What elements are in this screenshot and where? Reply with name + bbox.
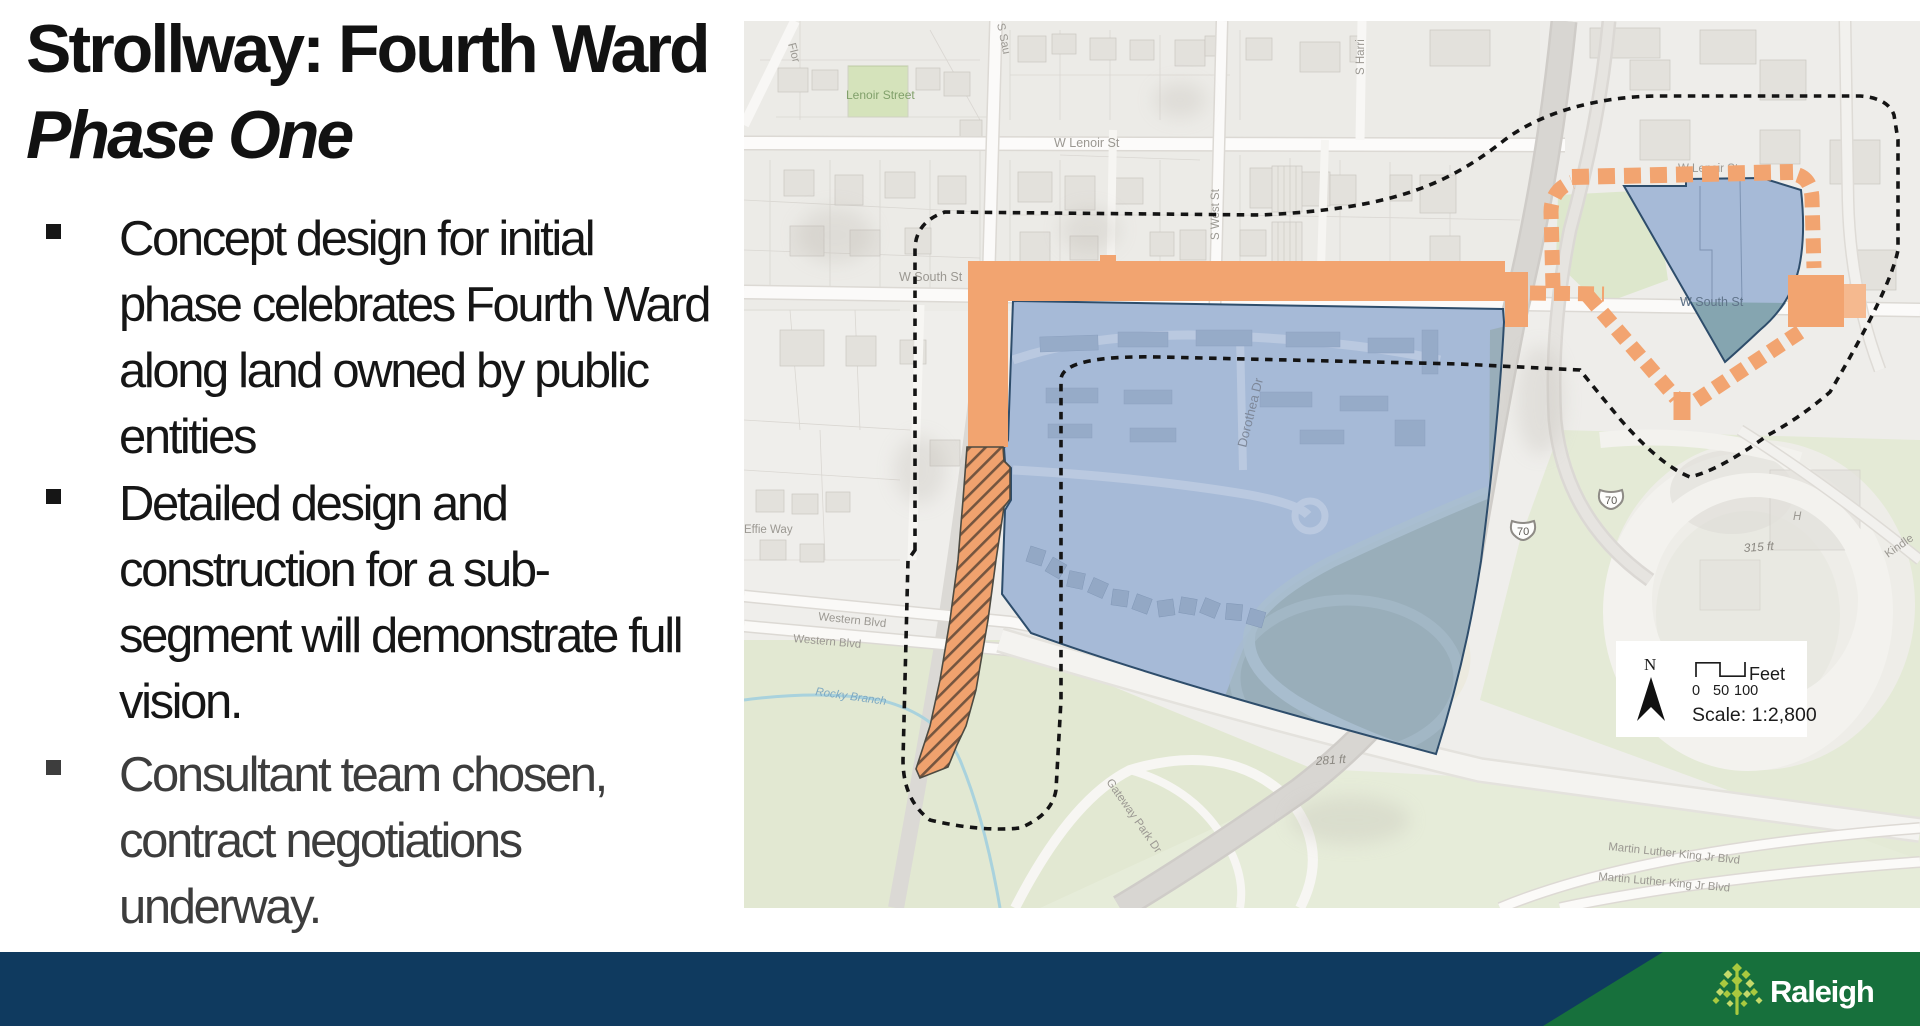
svg-text:Effie Way: Effie Way (744, 524, 793, 536)
svg-text:315 ft: 315 ft (1743, 539, 1775, 555)
svg-text:Lenoir Street: Lenoir Street (846, 88, 915, 102)
svg-text:70: 70 (1517, 526, 1529, 538)
svg-text:Feet: Feet (1749, 664, 1785, 684)
svg-text:N: N (1644, 655, 1656, 674)
svg-text:H: H (1793, 511, 1802, 523)
svg-text:W South St: W South St (899, 270, 963, 284)
svg-text:Scale: 1:2,800: Scale: 1:2,800 (1692, 704, 1817, 726)
svg-text:50: 50 (1713, 683, 1729, 699)
svg-text:W South St: W South St (1680, 295, 1744, 309)
svg-text:100: 100 (1734, 683, 1758, 699)
svg-text:S Harri: S Harri (1355, 39, 1367, 75)
svg-text:W Lenoir St: W Lenoir St (1054, 136, 1120, 150)
svg-text:70: 70 (1605, 495, 1617, 507)
svg-text:0: 0 (1692, 683, 1700, 699)
svg-text:281 ft: 281 ft (1314, 752, 1347, 768)
